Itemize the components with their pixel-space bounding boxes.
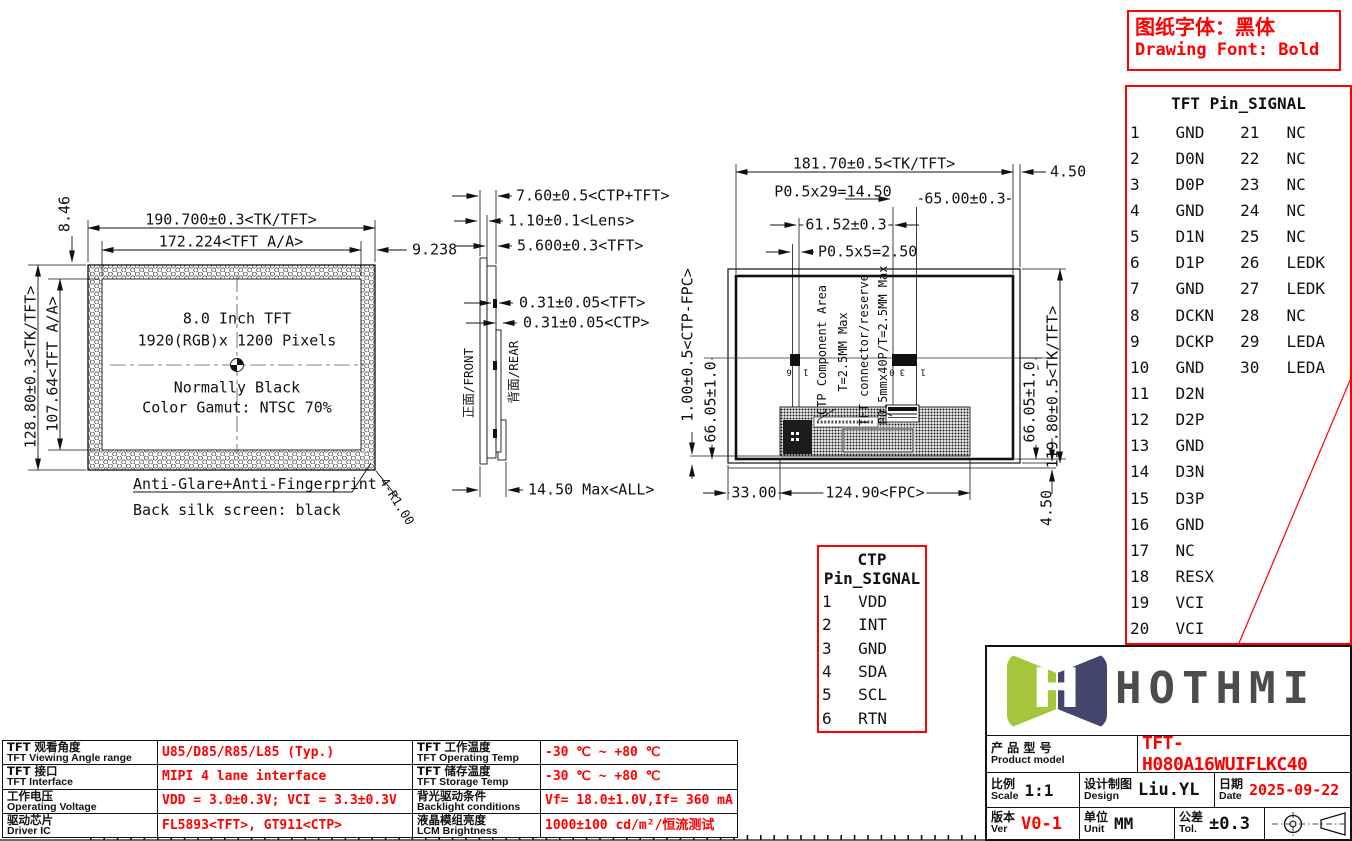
pin-number-cell: 5 bbox=[821, 684, 855, 705]
ctp-pin-row: 3GND bbox=[821, 638, 923, 659]
scale-value: 1:1 bbox=[1024, 781, 1053, 800]
pin-number-cell bbox=[1239, 460, 1283, 484]
pin-number-cell bbox=[1239, 408, 1283, 432]
tft-pin-table: TFT Pin_SIGNAL 1GND21NC2D0N22NC3D0P23NC4… bbox=[1125, 85, 1352, 645]
pin-number-cell bbox=[1239, 617, 1283, 641]
pin-number-cell: 4 bbox=[821, 661, 855, 682]
product-label-cell: 产 品 型 号 Product model bbox=[987, 735, 1137, 772]
spec-label-en: TFT Operating Temp bbox=[417, 753, 536, 764]
tft-pin-row: 2D0N22NC bbox=[1129, 146, 1348, 170]
pin-number-cell: 28 bbox=[1239, 303, 1283, 327]
pin-number-cell: 23 bbox=[1239, 172, 1283, 196]
pin-number-cell: 6 bbox=[821, 708, 855, 729]
pin-number-cell: 26 bbox=[1239, 251, 1283, 275]
pin-number-cell: 11 bbox=[1129, 381, 1173, 405]
pin-number-cell: 8 bbox=[1129, 303, 1173, 327]
pin-number-cell: 13 bbox=[1129, 434, 1173, 458]
projection-symbol-icon bbox=[1269, 809, 1346, 839]
design-label-cn: 设计制图 bbox=[1084, 778, 1132, 791]
pin-number-cell bbox=[1239, 512, 1283, 536]
tft-connector-spec-label: P0.5mmx40P/T=2.5MM Max bbox=[877, 266, 889, 425]
panel-gamut-text: Color Gamut: NTSC 70% bbox=[142, 401, 332, 416]
spec-label-cell: 工作电压Operating Voltage bbox=[3, 789, 158, 813]
pin-signal-cell bbox=[1285, 460, 1348, 484]
pin-number-cell: 2 bbox=[821, 614, 855, 635]
design-label-en: Design bbox=[1084, 791, 1132, 803]
spec-row: TFT 观看角度TFT Viewing Angle rangeU85/D85/R… bbox=[3, 741, 738, 765]
pin-number-cell: 22 bbox=[1239, 146, 1283, 170]
version-cell: 版本 Ver V0-1 bbox=[987, 807, 1079, 839]
pin-signal-cell bbox=[1285, 512, 1348, 536]
pin-number-cell: 29 bbox=[1239, 329, 1283, 353]
pin-number-cell: 30 bbox=[1239, 355, 1283, 379]
ctp-pin-row: 6RTN bbox=[821, 708, 923, 729]
projection-symbol-cell bbox=[1264, 807, 1350, 839]
tft-pin-row: 1GND21NC bbox=[1129, 120, 1348, 144]
pin-number-cell: 20 bbox=[1129, 617, 1173, 641]
pin-number-cell: 19 bbox=[1129, 591, 1173, 615]
pin-number-cell bbox=[1239, 486, 1283, 510]
pin-number-cell: 3 bbox=[821, 638, 855, 659]
pin-number-cell: 14 bbox=[1129, 460, 1173, 484]
pin-signal-cell bbox=[1285, 538, 1348, 562]
tft-pin-row: 17NC bbox=[1129, 538, 1348, 562]
pin-number-cell: 5 bbox=[1129, 225, 1173, 249]
ctp-area-label: CTP Component Area bbox=[816, 285, 828, 415]
spec-label-cell: TFT 观看角度TFT Viewing Angle range bbox=[3, 741, 158, 765]
pin-signal-cell: RESX bbox=[1175, 564, 1238, 588]
pin-signal-cell bbox=[1285, 381, 1348, 405]
product-model: TFT-H080A16WUIFLKC40 bbox=[1142, 733, 1346, 775]
pin-signal-cell: D3N bbox=[1175, 460, 1238, 484]
ctp-pin-table-title: CTP Pin_SIGNAL bbox=[821, 549, 923, 589]
pin-number-cell: 25 bbox=[1239, 225, 1283, 249]
hothmi-logo-icon: H bbox=[1007, 653, 1107, 729]
dim-label: 1.10±0.1<Lens> bbox=[508, 214, 634, 229]
pin-number-cell bbox=[1239, 434, 1283, 458]
pin-number-cell: 18 bbox=[1129, 564, 1173, 588]
scale-label-en: Scale bbox=[991, 791, 1018, 803]
pin-signal-cell: GND bbox=[1175, 277, 1238, 301]
dim-label: 181.70±0.5<TK/TFT> bbox=[793, 157, 956, 172]
spec-table-body: TFT 观看角度TFT Viewing Angle rangeU85/D85/R… bbox=[3, 741, 738, 838]
panel-resolution-text: 1920(RGB)x 1200 Pixels bbox=[138, 334, 337, 349]
dim-label: 4.50 bbox=[1040, 490, 1055, 526]
ctp-connector-pin-numbers: 1 6 bbox=[783, 367, 808, 376]
date-cell: 日期 Date 2025-09-22 bbox=[1214, 772, 1350, 807]
pin-signal-cell: VCI bbox=[1175, 591, 1238, 615]
panel-size-text: 8.0 Inch TFT bbox=[183, 312, 291, 327]
spec-label-cell: 驱动芯片Driver IC bbox=[3, 813, 158, 837]
spec-row: 工作电压Operating VoltageVDD = 3.0±0.3V; VCI… bbox=[3, 789, 738, 813]
tft-pin-row: 7GND27LEDK bbox=[1129, 277, 1348, 301]
ctp-thickness-label: T=2.5MM Max bbox=[837, 312, 849, 391]
version-label-en: Ver bbox=[991, 824, 1015, 836]
pin-signal-cell: D0N bbox=[1175, 146, 1238, 170]
product-label-cn: 产 品 型 号 bbox=[991, 742, 1065, 755]
pin-signal-cell: NC bbox=[1285, 225, 1348, 249]
pin-signal-cell: D1N bbox=[1175, 225, 1238, 249]
dim-label: 124.90<FPC> bbox=[823, 486, 926, 501]
version-value: V0-1 bbox=[1021, 814, 1062, 834]
scale-cell: 比例 Scale 1:1 bbox=[987, 772, 1079, 807]
pin-signal-cell: D2N bbox=[1175, 381, 1238, 405]
dim-label: 4.50 bbox=[1050, 165, 1086, 180]
dim-label: 8.46 bbox=[58, 196, 73, 232]
font-notice-cn: 图纸字体：黑体 bbox=[1135, 15, 1333, 40]
tft-pin-row: 16GND bbox=[1129, 512, 1348, 536]
pin-number-cell bbox=[1239, 564, 1283, 588]
scale-label-cn: 比例 bbox=[991, 778, 1018, 791]
design-cell: 设计制图 Design Liu.YL bbox=[1079, 772, 1214, 807]
ctp-pin-table-body: 1VDD2INT3GND4SDA5SCL6RTN bbox=[821, 591, 923, 729]
tft-pin-row: 9DCKP29LEDA bbox=[1129, 329, 1348, 353]
spec-value-cell: MIPI 4 lane interface bbox=[158, 765, 413, 789]
pin-number-cell: 10 bbox=[1129, 355, 1173, 379]
pin-signal-cell: NC bbox=[1285, 146, 1348, 170]
spec-label-en: TFT Interface bbox=[7, 777, 153, 788]
dim-label: 128.80±0.3<TK/TFT> bbox=[24, 286, 39, 449]
dim-label: 9.238 bbox=[412, 243, 457, 258]
dim-label: 7.60±0.5<CTP+TFT> bbox=[516, 189, 670, 204]
front-side-label: 正面/FRONT bbox=[463, 348, 476, 418]
dim-label: 190.700±0.3<TK/TFT> bbox=[145, 213, 317, 228]
pin-number-cell: 3 bbox=[1129, 172, 1173, 196]
silkscreen-note: Back silk screen: black bbox=[133, 503, 341, 518]
drawing-sheet: 190.700±0.3<TK/TFT> 172.224<TFT A/A> 9.2… bbox=[0, 0, 1352, 841]
spec-row: TFT 接口TFT InterfaceMIPI 4 lane interface… bbox=[3, 765, 738, 789]
pin-number-cell: 4 bbox=[1129, 198, 1173, 222]
dim-label: 33.00 bbox=[729, 486, 778, 501]
unit-value: MM bbox=[1114, 814, 1133, 833]
pin-signal-cell: VCI bbox=[1175, 617, 1238, 641]
tft-pin-row: 8DCKN28NC bbox=[1129, 303, 1348, 327]
tft-pin-row: 13GND bbox=[1129, 434, 1348, 458]
pin-number-cell: 7 bbox=[1129, 277, 1173, 301]
pin-signal-cell: NC bbox=[1285, 198, 1348, 222]
logo-wordmark: HOTHMI bbox=[1115, 663, 1316, 714]
tft-pin-row: 5D1N25NC bbox=[1129, 225, 1348, 249]
unit-label-en: Unit bbox=[1084, 824, 1108, 836]
spec-value-cell: 1000±100 cd/m²/恒流测试 bbox=[541, 813, 738, 837]
design-value: Liu.YL bbox=[1138, 780, 1199, 800]
tolerance-value: ±0.3 bbox=[1209, 814, 1250, 834]
pin-number-cell: 12 bbox=[1129, 408, 1173, 432]
dim-label: 14.50 Max<ALL> bbox=[528, 483, 654, 498]
pin-number-cell: 15 bbox=[1129, 486, 1173, 510]
dim-label: 61.52±0.3 bbox=[803, 218, 888, 233]
spec-value-cell: Vf= 18.0±1.0V,If= 360 mA bbox=[541, 789, 738, 813]
ctp-pin-table: CTP Pin_SIGNAL 1VDD2INT3GND4SDA5SCL6RTN bbox=[817, 545, 927, 733]
spec-label-en: Backlight conditions bbox=[417, 802, 536, 813]
ctp-pin-row: 1VDD bbox=[821, 591, 923, 612]
spec-label-cell: TFT 储存温度TFT Storage Temp bbox=[413, 765, 541, 789]
spec-label-cell: 液晶模组亮度LCM Brightness bbox=[413, 813, 541, 837]
ctp-pin-row: 2INT bbox=[821, 614, 923, 635]
ctp-pin-row: 5SCL bbox=[821, 684, 923, 705]
pin-signal-cell: GND bbox=[1175, 198, 1238, 222]
dim-label: 119.80±0.5<TK/TFT> bbox=[1046, 306, 1061, 469]
pin-signal-cell: D2P bbox=[1175, 408, 1238, 432]
pin-signal-cell: GND bbox=[1175, 512, 1238, 536]
dim-label: P0.5x5=2.50 bbox=[818, 245, 917, 260]
product-label-en: Product model bbox=[991, 755, 1065, 767]
pin-signal-cell bbox=[1285, 434, 1348, 458]
spec-value-cell: -30 ℃ ~ +80 ℃ bbox=[541, 765, 738, 789]
title-block: H HOTHMI 产 品 型 号 Product model TFT-H080A… bbox=[985, 645, 1352, 841]
pin-signal-cell: GND bbox=[857, 638, 923, 659]
pin-number-cell: 27 bbox=[1239, 277, 1283, 301]
pin-signal-cell: D3P bbox=[1175, 486, 1238, 510]
font-notice-box: 图纸字体：黑体 Drawing Font: Bold bbox=[1127, 10, 1341, 71]
pin-signal-cell: NC bbox=[1285, 172, 1348, 196]
pin-number-cell: 17 bbox=[1129, 538, 1173, 562]
pin-number-cell bbox=[1239, 591, 1283, 615]
product-value-cell: TFT-H080A16WUIFLKC40 bbox=[1137, 735, 1350, 772]
tft-pin-row: 11D2N bbox=[1129, 381, 1348, 405]
pin-signal-cell bbox=[1285, 591, 1348, 615]
pin-signal-cell: DCKP bbox=[1175, 329, 1238, 353]
pin-signal-cell: LEDK bbox=[1285, 251, 1348, 275]
pin-signal-cell: NC bbox=[1285, 303, 1348, 327]
pin-number-cell bbox=[1239, 538, 1283, 562]
spec-label-en: LCM Brightness bbox=[417, 826, 536, 837]
spec-value-cell: -30 ℃ ~ +80 ℃ bbox=[541, 741, 738, 765]
pin-number-cell: 1 bbox=[821, 591, 855, 612]
pin-signal-cell: INT bbox=[857, 614, 923, 635]
tft-pin-row: 14D3N bbox=[1129, 460, 1348, 484]
pin-signal-cell: D1P bbox=[1175, 251, 1238, 275]
tft-pin-row: 20VCI bbox=[1129, 617, 1348, 641]
pin-signal-cell: NC bbox=[1175, 538, 1238, 562]
pin-signal-cell: LEDA bbox=[1285, 355, 1348, 379]
pin-signal-cell bbox=[1285, 617, 1348, 641]
pin-signal-cell: GND bbox=[1175, 355, 1238, 379]
tft-connector-label: TFT connector/reserve bbox=[858, 274, 870, 426]
logo-cell: H HOTHMI bbox=[987, 647, 1350, 735]
pin-signal-cell: NC bbox=[1285, 120, 1348, 144]
tft-pin-row: 12D2P bbox=[1129, 408, 1348, 432]
tft-pin-row: 10GND30LEDA bbox=[1129, 355, 1348, 379]
tft-pin-row: 15D3P bbox=[1129, 486, 1348, 510]
pin-number-cell: 21 bbox=[1239, 120, 1283, 144]
spec-label-en: Operating Voltage bbox=[7, 802, 153, 813]
spec-row: 驱动芯片Driver ICFL5893<TFT>, GT911<CTP>液晶模组… bbox=[3, 813, 738, 837]
pin-signal-cell: D0P bbox=[1175, 172, 1238, 196]
pin-number-cell: 6 bbox=[1129, 251, 1173, 275]
date-label-cn: 日期 bbox=[1219, 778, 1243, 791]
dim-label: 5.600±0.3<TFT> bbox=[517, 239, 643, 254]
tft-pin-table-body: 1GND21NC2D0N22NC3D0P23NC4GND24NC5D1N25NC… bbox=[1129, 120, 1348, 641]
spec-value-cell: U85/D85/R85/L85 (Typ.) bbox=[158, 741, 413, 765]
tft-pin-row: 3D0P23NC bbox=[1129, 172, 1348, 196]
date-label-en: Date bbox=[1219, 791, 1243, 803]
pin-signal-cell bbox=[1285, 486, 1348, 510]
pin-number-cell: 24 bbox=[1239, 198, 1283, 222]
dim-label: P0.5x29=14.50 bbox=[774, 185, 891, 200]
spec-label-en: TFT Viewing Angle range bbox=[7, 753, 153, 764]
pin-signal-cell: VDD bbox=[857, 591, 923, 612]
spec-label-en: Driver IC bbox=[7, 826, 153, 837]
spec-label-cn: 背光驱动条件 bbox=[417, 790, 536, 802]
dim-label: 65.00±0.3 bbox=[922, 192, 1007, 207]
pin-number-cell: 1 bbox=[1129, 120, 1173, 144]
surface-note: Anti-Glare+Anti-Fingerprint bbox=[133, 477, 377, 492]
spec-label-cell: TFT 接口TFT Interface bbox=[3, 765, 158, 789]
pin-signal-cell: SDA bbox=[857, 661, 923, 682]
date-value: 2025-09-22 bbox=[1249, 781, 1339, 799]
tft-pin-table-title: TFT Pin_SIGNAL bbox=[1129, 89, 1348, 118]
tft-pin-row: 6D1P26LEDK bbox=[1129, 251, 1348, 275]
panel-mode-text: Normally Black bbox=[174, 381, 300, 396]
pin-signal-cell: GND bbox=[1175, 120, 1238, 144]
spec-table: TFT 观看角度TFT Viewing Angle rangeU85/D85/R… bbox=[2, 740, 738, 838]
spec-label-cell: 背光驱动条件Backlight conditions bbox=[413, 789, 541, 813]
pin-signal-cell: LEDA bbox=[1285, 329, 1348, 353]
tft-connector-pin-numbers: 1 30 bbox=[884, 367, 926, 376]
pin-number-cell: 2 bbox=[1129, 146, 1173, 170]
pin-number-cell: 16 bbox=[1129, 512, 1173, 536]
pin-signal-cell: GND bbox=[1175, 434, 1238, 458]
tft-pin-row: 4GND24NC bbox=[1129, 198, 1348, 222]
tolerance-label-en: Tol. bbox=[1179, 824, 1203, 836]
pin-signal-cell: LEDK bbox=[1285, 277, 1348, 301]
pin-signal-cell: DCKN bbox=[1175, 303, 1238, 327]
pin-signal-cell bbox=[1285, 564, 1348, 588]
dim-label: 66.05±1.0 bbox=[704, 359, 719, 444]
dim-label: 1.00±0.5<CTP-FPC> bbox=[681, 268, 696, 422]
dim-label: 0.31±0.05<CTP> bbox=[523, 316, 649, 331]
tft-pin-row: 18RESX bbox=[1129, 564, 1348, 588]
rear-side-label: 背面/REAR bbox=[508, 341, 521, 404]
font-notice-en: Drawing Font: Bold bbox=[1135, 40, 1333, 60]
pin-signal-cell bbox=[1285, 408, 1348, 432]
dim-label: 66.05±1.0 bbox=[1023, 359, 1038, 444]
pin-number-cell bbox=[1239, 381, 1283, 405]
pin-number-cell: 9 bbox=[1129, 329, 1173, 353]
spec-label-en: TFT Storage Temp bbox=[417, 777, 536, 788]
dim-label: 107.64<TFT A/A> bbox=[46, 296, 61, 431]
tft-pin-row: 19VCI bbox=[1129, 591, 1348, 615]
ctp-pin-row: 4SDA bbox=[821, 661, 923, 682]
pin-signal-cell: RTN bbox=[857, 708, 923, 729]
tolerance-cell: 公差 Tol. ±0.3 bbox=[1174, 807, 1264, 839]
unit-cell: 单位 Unit MM bbox=[1079, 807, 1174, 839]
spec-value-cell: VDD = 3.0±0.3V; VCI = 3.3±0.3V bbox=[158, 789, 413, 813]
pin-signal-cell: SCL bbox=[857, 684, 923, 705]
spec-label-cell: TFT 工作温度TFT Operating Temp bbox=[413, 741, 541, 765]
dim-label: 172.224<TFT A/A> bbox=[159, 235, 304, 250]
dim-label: 0.31±0.05<TFT> bbox=[519, 296, 645, 311]
spec-label-cn: 工作电压 bbox=[7, 790, 153, 802]
spec-value-cell: FL5893<TFT>, GT911<CTP> bbox=[158, 813, 413, 837]
